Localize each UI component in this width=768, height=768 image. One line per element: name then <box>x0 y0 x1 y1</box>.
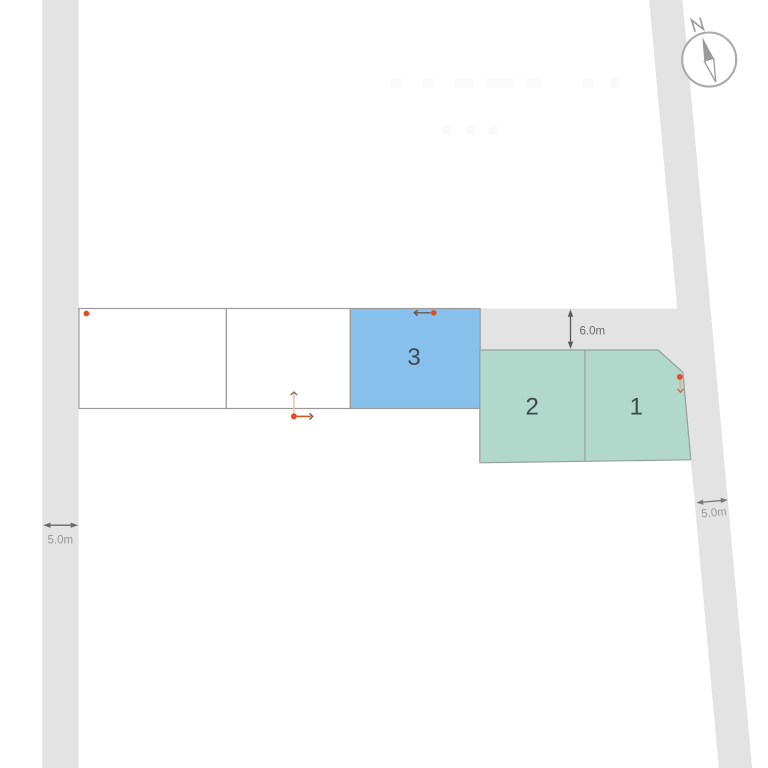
svg-text:2: 2 <box>526 393 539 420</box>
svg-text:6.0m: 6.0m <box>580 325 606 337</box>
svg-text:5.0m: 5.0m <box>48 534 74 546</box>
svg-text:1: 1 <box>630 393 643 420</box>
svg-text:3: 3 <box>407 344 420 371</box>
svg-text:5.0m: 5.0m <box>701 506 728 520</box>
